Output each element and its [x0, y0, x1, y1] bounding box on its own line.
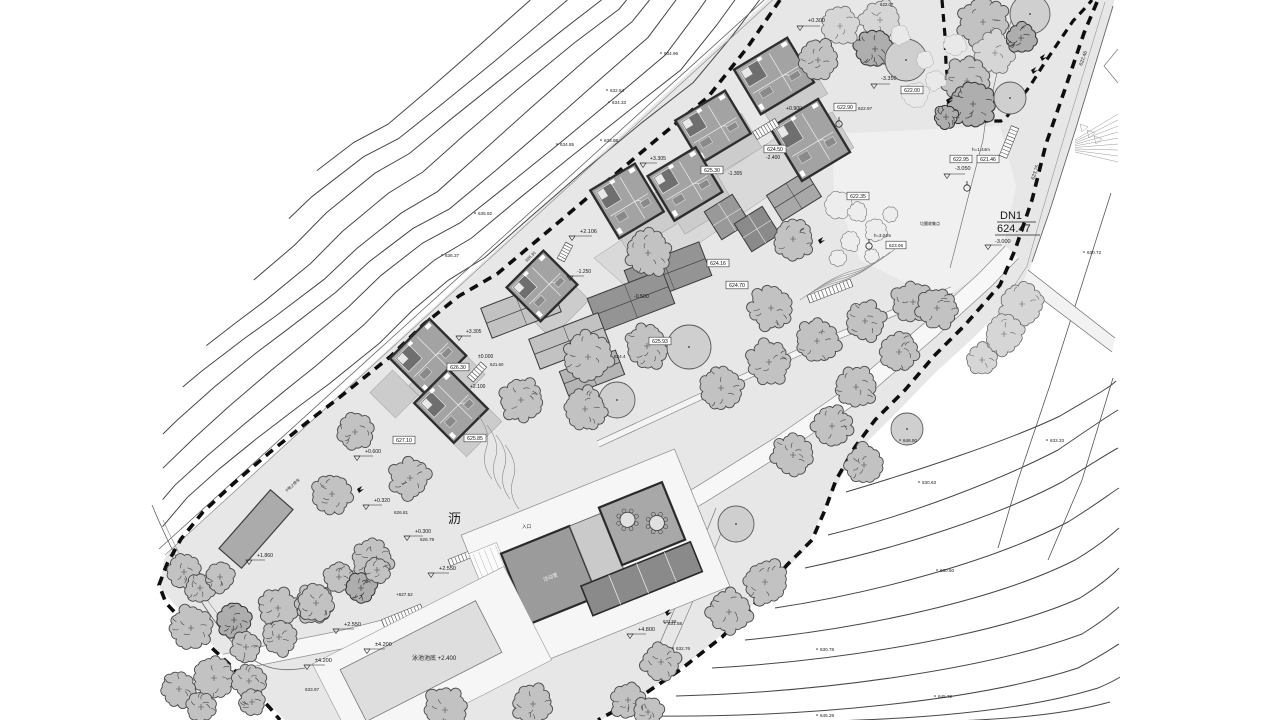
svg-text:634.33: 634.33: [612, 100, 626, 105]
svg-text:-3.350: -3.350: [881, 76, 897, 82]
svg-text:646.50: 646.50: [903, 438, 917, 443]
svg-text:630.63: 630.63: [922, 480, 936, 485]
svg-text:624.16: 624.16: [710, 261, 726, 267]
svg-text:630.72: 630.72: [1087, 250, 1101, 255]
svg-text:624.50: 624.50: [767, 147, 783, 153]
svg-text:622.35: 622.35: [850, 194, 866, 200]
svg-text:+2.550: +2.550: [344, 622, 361, 628]
svg-text:636.92: 636.92: [478, 211, 492, 216]
svg-text:623.06: 623.06: [889, 243, 903, 248]
svg-text:630.78: 630.78: [820, 647, 834, 652]
svg-text:+3.305: +3.305: [466, 329, 482, 335]
svg-text:624.70: 624.70: [729, 283, 745, 289]
svg-text:±0.000: ±0.000: [478, 354, 493, 360]
svg-text:-0.500: -0.500: [634, 294, 649, 300]
svg-text:626.81: 626.81: [394, 510, 408, 515]
svg-text:633.98: 633.98: [604, 138, 618, 143]
svg-text:621.60: 621.60: [490, 362, 504, 367]
svg-text:+4.800: +4.800: [638, 627, 655, 633]
svg-text:泳池池底 +2.400: 泳池池底 +2.400: [412, 654, 457, 662]
svg-text:+0.900: +0.900: [786, 106, 802, 112]
svg-text:625.85: 625.85: [467, 436, 483, 442]
svg-text:627.10: 627.10: [396, 438, 412, 444]
svg-text:DN1: DN1: [1000, 210, 1022, 222]
svg-text:634.96: 634.96: [664, 51, 678, 56]
svg-text:h=1.44m: h=1.44m: [972, 147, 990, 152]
svg-text:645.72: 645.72: [938, 694, 952, 699]
svg-text:624.47: 624.47: [997, 223, 1031, 235]
svg-text:-3.050: -3.050: [955, 166, 971, 172]
svg-text:632.54: 632.54: [610, 88, 624, 93]
svg-text:621.46: 621.46: [980, 157, 996, 163]
svg-text:624.4: 624.4: [614, 354, 626, 359]
svg-text:±4.200: ±4.200: [315, 658, 332, 664]
svg-text:626.79: 626.79: [420, 537, 434, 542]
svg-text:634.85: 634.85: [560, 142, 574, 147]
svg-text:622.90: 622.90: [837, 105, 853, 111]
svg-text:+0.600: +0.600: [365, 449, 381, 455]
svg-text:+2.550: +2.550: [439, 566, 456, 572]
svg-text:630.50: 630.50: [940, 568, 954, 573]
svg-text:+0.300: +0.300: [415, 529, 431, 535]
svg-text:625.30: 625.30: [704, 168, 720, 174]
svg-text:±4.200: ±4.200: [375, 642, 392, 648]
svg-text:+1.860: +1.860: [257, 553, 273, 559]
svg-text:+0.320: +0.320: [374, 498, 390, 504]
svg-text:626.30: 626.30: [450, 365, 466, 371]
svg-text:-3.000: -3.000: [995, 239, 1011, 245]
svg-text:h=3.04m: h=3.04m: [874, 233, 892, 238]
svg-text:633.33: 633.33: [1050, 438, 1064, 443]
svg-text:沥: 沥: [448, 511, 461, 526]
svg-text:+0.300: +0.300: [808, 18, 825, 24]
svg-text:622.95: 622.95: [953, 157, 969, 163]
svg-text:+3.305: +3.305: [650, 156, 666, 162]
svg-text:622.07: 622.07: [880, 2, 894, 7]
svg-text:-2.400: -2.400: [766, 155, 780, 161]
svg-text:645.28: 645.28: [820, 713, 834, 718]
svg-text:622.97: 622.97: [858, 106, 872, 111]
svg-text:垃圕收集点: 垃圕收集点: [920, 220, 940, 226]
svg-text:-1.250: -1.250: [577, 269, 591, 275]
svg-text:+627.52: +627.52: [396, 592, 413, 597]
svg-text:631.58: 631.58: [663, 619, 677, 624]
svg-text:622.00: 622.00: [904, 88, 920, 94]
svg-text:-1.305: -1.305: [728, 171, 742, 177]
svg-text:+2.106: +2.106: [580, 229, 597, 235]
svg-text:632.76: 632.76: [676, 646, 690, 651]
svg-text:633.97: 633.97: [305, 687, 319, 692]
svg-text:+2.100: +2.100: [470, 384, 486, 390]
svg-text:636.37: 636.37: [445, 253, 459, 258]
svg-text:625.93: 625.93: [652, 339, 668, 345]
